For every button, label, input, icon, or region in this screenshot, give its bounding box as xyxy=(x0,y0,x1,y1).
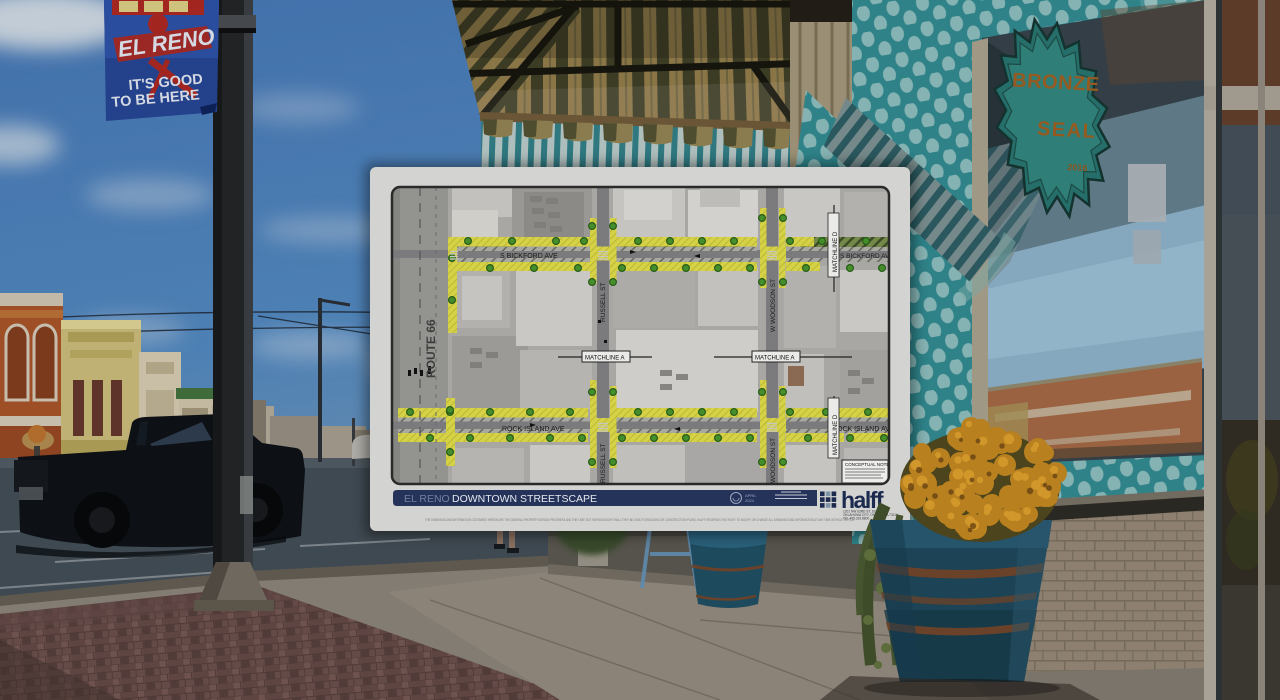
svg-text:EL RENO: EL RENO xyxy=(404,493,450,505)
svg-text:ROCK ISLAND AVE: ROCK ISLAND AVE xyxy=(502,426,565,433)
svg-text:2024: 2024 xyxy=(745,498,755,503)
svg-text:S BICKFORD AVE: S BICKFORD AVE xyxy=(840,253,894,260)
svg-text:DOWNTOWN STREETSCAPE: DOWNTOWN STREETSCAPE xyxy=(452,493,597,505)
svg-text:CONCEPTUAL NOTE: CONCEPTUAL NOTE xyxy=(845,462,889,467)
svg-text:S BICKFORD AVE: S BICKFORD AVE xyxy=(500,253,558,260)
svg-text:THE DRAWINGS AND INFORMATION C: THE DRAWINGS AND INFORMATION CONTAINED H… xyxy=(425,518,855,522)
svg-text:MATCHLINE D: MATCHLINE D xyxy=(833,414,839,455)
svg-text:ROUTE 66: ROUTE 66 xyxy=(424,319,438,378)
svg-text:OCK ISLAND AVE: OCK ISLAND AVE xyxy=(837,426,895,433)
svg-text:MATCHLINE A: MATCHLINE A xyxy=(585,356,625,362)
svg-text:BRONZE: BRONZE xyxy=(1012,70,1100,97)
svg-text:W WOODSON ST: W WOODSON ST xyxy=(770,279,777,332)
svg-text:2016: 2016 xyxy=(1067,162,1088,173)
svg-text:WOODSON ST: WOODSON ST xyxy=(770,438,777,483)
svg-text:MATCHLINE A: MATCHLINE A xyxy=(755,356,795,362)
svg-text:RUSSELL ST: RUSSELL ST xyxy=(600,282,607,322)
svg-text:MATCHLINE D: MATCHLINE D xyxy=(833,231,839,272)
svg-text:RUSSELL ST: RUSSELL ST xyxy=(600,443,607,483)
svg-text:SEAL: SEAL xyxy=(1036,118,1096,143)
